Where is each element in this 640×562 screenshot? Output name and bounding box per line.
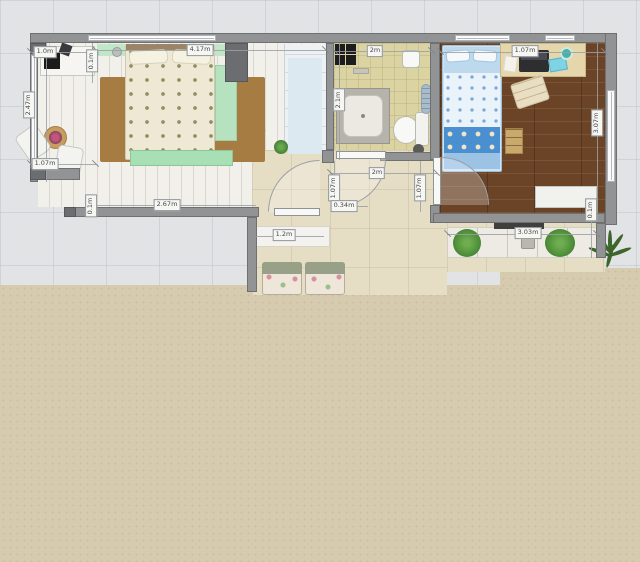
dim-label-hallway-width: 2m <box>369 167 385 179</box>
wall-bathroom-bottom <box>380 152 437 161</box>
dim-label-kids-right: 3.07m <box>591 110 603 137</box>
window-kids-1[interactable] <box>455 35 510 41</box>
kids-duvet <box>444 73 500 127</box>
bathroom-door[interactable] <box>336 151 386 159</box>
wall-notch-corner <box>322 150 334 163</box>
window-kids-2[interactable] <box>545 35 575 41</box>
dim-label-hall-door-left: 1.07m <box>328 175 340 202</box>
washbasin[interactable] <box>402 50 420 68</box>
dim-label-bathroom-top: 2m <box>367 45 383 57</box>
toilet-tank[interactable] <box>415 112 429 146</box>
potted-plant[interactable] <box>274 140 288 154</box>
bed-steps[interactable] <box>505 128 523 154</box>
bedroom-door[interactable] <box>274 208 320 216</box>
wall-right-stub <box>596 223 606 258</box>
dim-label-hall-offset: 0.34m <box>331 200 358 212</box>
dim-label-sill-thickness: 0.1m <box>585 199 597 222</box>
floorplan-canvas[interactable]: 1.0m 2.47m 1.07m 0.1m 4.17m 2.67m 0.1m 2… <box>0 0 640 562</box>
window-right-wall[interactable] <box>607 90 615 182</box>
canvas-ground <box>0 285 640 562</box>
dim-label-kids-sill: 3.03m <box>515 227 542 239</box>
dim-label-hall-door-right: 1.07m <box>414 175 426 202</box>
wall-kids-bottom <box>433 213 605 223</box>
table-flowers <box>49 131 62 144</box>
dim-label-bedroom-bottom: 2.67m <box>154 199 181 211</box>
dim-label-living-opening: 1.2m <box>273 229 296 241</box>
kids-door[interactable] <box>433 157 441 205</box>
bathroom-checker-tile <box>346 55 356 65</box>
dim-label-kids-top: 1.07m <box>512 45 539 57</box>
dim-label-bedroom-bl: 0.1m <box>85 195 97 218</box>
bed-foot-bench[interactable] <box>130 150 233 166</box>
wall-bathroom-kids <box>430 43 440 160</box>
wall-stub <box>30 169 46 180</box>
dim-label-bathroom-left: 2.1m <box>333 89 345 112</box>
bathroom-checker-tile <box>335 55 345 65</box>
wall-hall-drop <box>247 217 257 292</box>
armchair-backrest <box>262 262 302 274</box>
column <box>225 43 248 82</box>
dim-label-balcony-left: 2.47m <box>23 92 35 119</box>
dim-label-bedroom-width: 4.17m <box>187 44 214 56</box>
dim-label-balcony-top: 1.0m <box>34 46 57 58</box>
shower-drain <box>361 114 365 118</box>
armchair-backrest <box>305 262 345 274</box>
bedside-lamp[interactable] <box>112 47 122 57</box>
dim-label-balcony-bottom: 1.07m <box>32 158 59 170</box>
bath-shelf[interactable] <box>353 68 369 74</box>
window-bedroom[interactable] <box>88 35 216 41</box>
desk-mug <box>560 47 573 60</box>
desk-papers <box>503 55 518 73</box>
kids-bed-footband <box>444 127 500 153</box>
bed-pillow <box>129 49 169 65</box>
wall-stub <box>64 207 76 217</box>
bathroom-checker-tile <box>346 44 356 54</box>
dim-label-wall-thickness: 0.1m <box>86 50 98 73</box>
wardrobe-inner-panel <box>288 58 322 154</box>
